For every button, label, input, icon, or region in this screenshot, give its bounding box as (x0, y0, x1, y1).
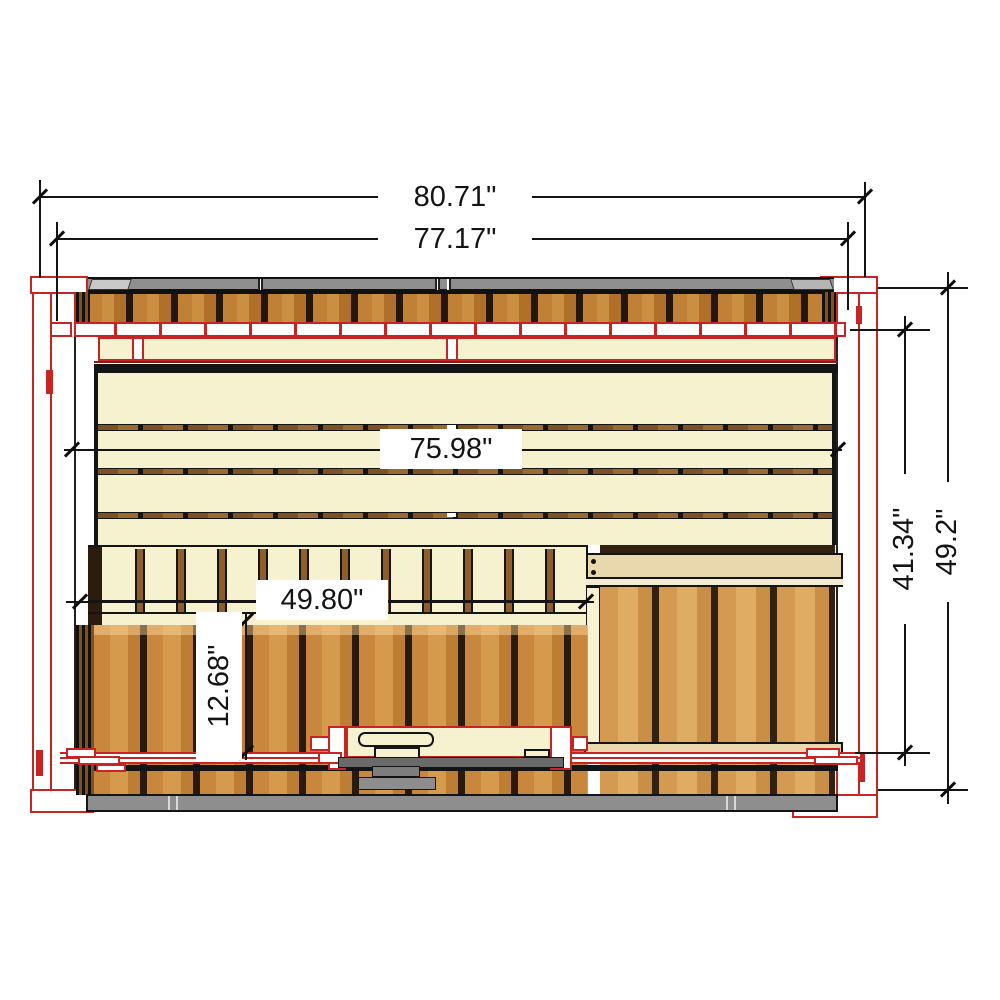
dim-label-outer-width: 80.71" (378, 179, 532, 215)
dimline-side-inner-a (904, 316, 906, 492)
dimline-bench-width-a (64, 449, 380, 451)
dim-label-bench-depth: 12.68" (196, 612, 242, 760)
dim-label-inner-width: 77.17" (378, 221, 532, 257)
dim-label-side-outer: 49.2" (928, 482, 966, 602)
dimline-bench-width-b (522, 449, 842, 451)
dimline-side-inner-b (904, 610, 906, 766)
dimline-side-outer-b (947, 598, 949, 804)
skid-seam-4 (734, 796, 736, 810)
skid-seam-1 (168, 796, 170, 810)
right-wall-inner-line (858, 285, 860, 805)
backrest-screw-1 (591, 559, 596, 564)
door-step-lower (358, 777, 436, 790)
dim-label-bench-width: 75.98" (380, 429, 522, 469)
leader-side-outer-top (878, 287, 968, 289)
dimline-side-outer-a (947, 272, 949, 498)
dimline-front-bench-b (386, 601, 594, 603)
right-bench-dark-strip (600, 545, 835, 553)
skid-seam-2 (176, 796, 178, 810)
wall-marker-left-lower (36, 750, 43, 776)
skid-seam-3 (726, 796, 728, 810)
door-trim-right-1 (572, 736, 588, 751)
center-divider-post (586, 587, 600, 747)
wall-layer-stripes-right (822, 292, 836, 322)
dimline-front-bench-a (66, 601, 258, 603)
floor-planks-left-highlight (94, 625, 588, 635)
trim-seam-center (446, 337, 458, 361)
bench-slat-row-3 (98, 512, 832, 519)
door-step-upper (372, 766, 420, 777)
right-bench-light-strip (586, 579, 843, 587)
trim-seam-left (132, 337, 144, 361)
roof-seam-1 (258, 279, 263, 290)
dim-label-side-inner: 41.34" (885, 474, 923, 624)
roof-cap-left (88, 279, 132, 290)
upper-trim-board (98, 337, 836, 361)
right-backrest-board (586, 553, 843, 579)
threshold-block-right-2 (814, 756, 858, 765)
wall-marker-right-upper (856, 306, 862, 324)
door-handle (358, 732, 434, 747)
left-wall-inner-line (50, 285, 52, 805)
right-wall (836, 283, 878, 807)
left-wall (32, 283, 76, 807)
dimline-outer-width-a (40, 196, 378, 198)
dimline-inner-width-a (57, 238, 378, 240)
wall-layer-stripes-left (76, 292, 90, 322)
slat-clip-2 (447, 513, 456, 517)
leader-side-inner-bottom (855, 752, 930, 754)
sauna-plan-drawing: 80.71" 77.17" 75.98" 49.80" 12.68" 41.34… (0, 0, 1000, 1000)
dimline-outer-width-b (532, 196, 865, 198)
roof-seam-3 (447, 279, 451, 290)
right-wall-edge-line (836, 330, 838, 750)
roof-band (88, 277, 834, 292)
back-wall-planks (88, 292, 834, 322)
roof-seam-2 (435, 279, 440, 290)
bench-back-shadow (94, 364, 838, 373)
dimline-bench-depth (245, 614, 247, 760)
threshold-block-left-3 (96, 764, 126, 772)
dim-label-front-bench-width: 49.80" (256, 580, 388, 620)
dimline-inner-width-b (532, 238, 848, 240)
bench-back-redline (94, 361, 838, 363)
bench-slat-row-2 (98, 468, 832, 475)
roof-cap-right (790, 279, 834, 290)
wall-marker-left-upper (46, 370, 53, 394)
clip-strip-end-block (50, 322, 72, 337)
clip-strip (74, 322, 846, 337)
floor-edge-stripes-left (76, 625, 94, 795)
backrest-screw-2 (591, 570, 596, 575)
door-trim-left-1 (310, 736, 330, 751)
front-bench-dark-edge (88, 547, 102, 633)
leader-side-outer-bottom (878, 789, 968, 791)
leader-side-inner-top (850, 329, 930, 331)
